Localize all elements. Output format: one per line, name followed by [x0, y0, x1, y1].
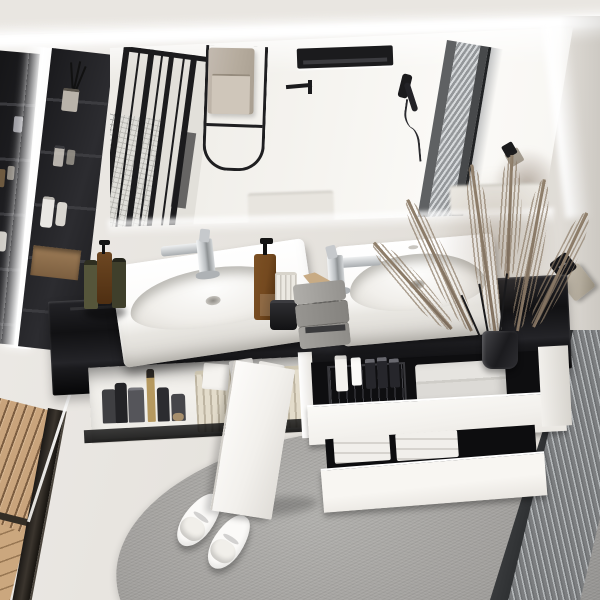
folded-towel-stack: [333, 434, 391, 464]
amber-bottle-set-left: [82, 246, 130, 336]
dark-bottle: [112, 258, 126, 308]
reflected-beige-towel: [207, 48, 254, 115]
counter-accessories-center: [250, 240, 350, 352]
overflow-hole: [408, 245, 418, 250]
faucet-lever[interactable]: [199, 229, 210, 243]
grey-towel-stack: [293, 279, 354, 352]
pump-bottle: [334, 355, 348, 392]
black-jar: [270, 300, 297, 330]
folded-towel-stack: [395, 430, 459, 461]
niche-bottle: [7, 166, 15, 181]
plant-branch: [506, 155, 513, 279]
pump-head: [260, 238, 273, 244]
glass-jar: [389, 358, 401, 387]
reed-diffuser-bottle: [61, 88, 80, 113]
pump-stem: [102, 244, 105, 254]
perfume-bottle: [53, 145, 65, 167]
wooden-box: [30, 245, 81, 280]
left-faucet[interactable]: [159, 227, 235, 292]
glass-jar: [377, 357, 389, 388]
faucet-base: [195, 270, 220, 280]
wooden-louver-door: [0, 396, 92, 600]
stone: [173, 413, 184, 421]
niche-bottle: [0, 231, 7, 252]
perfume-bottle: [66, 149, 76, 165]
toiletry-bottle: [40, 196, 55, 228]
brush: [146, 369, 156, 422]
canister-cluster: [101, 362, 193, 429]
ladder-rung: [206, 123, 262, 128]
dried-plant: [436, 155, 568, 373]
towel-flap: [211, 74, 250, 115]
amber-pump-bottle: [97, 252, 112, 304]
reflected-towel-hook-arm: [308, 80, 312, 94]
niche-bottle: [0, 169, 6, 188]
glass-jar: [365, 359, 377, 389]
pump-head: [99, 240, 110, 245]
toiletry-bottle: [55, 202, 68, 227]
reflected-window-frame: [297, 45, 394, 68]
bathroom-scene: [0, 0, 600, 600]
dark-vase: [482, 331, 518, 369]
canister: [128, 387, 145, 423]
folded-towel: [202, 363, 230, 391]
cosmetic-tube: [351, 357, 362, 385]
canister: [157, 387, 170, 421]
canister: [115, 383, 128, 423]
window-slit: [303, 58, 387, 65]
olive-bottle: [84, 260, 98, 309]
faucet-body: [196, 238, 215, 273]
